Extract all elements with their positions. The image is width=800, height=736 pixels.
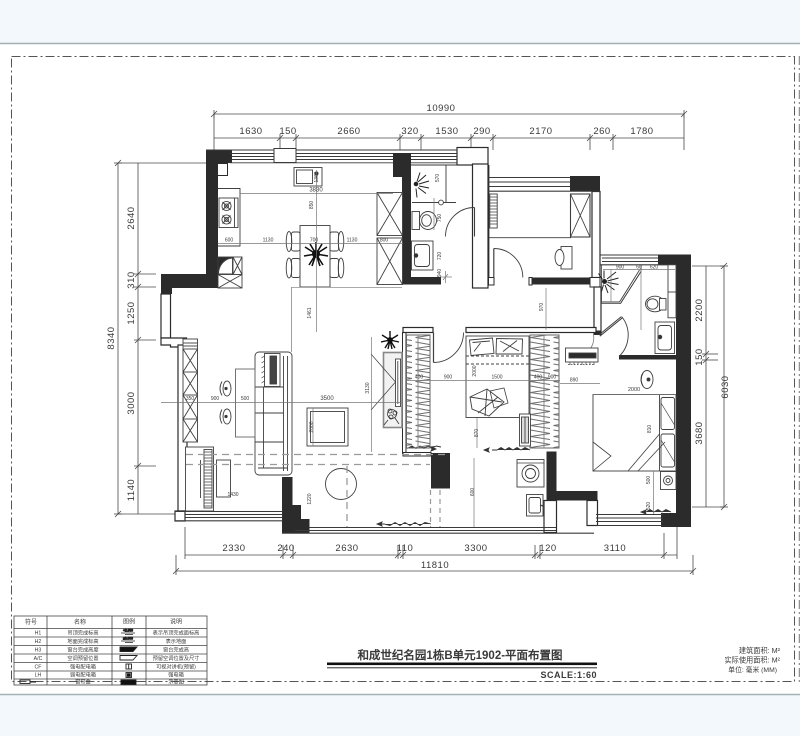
svg-text:SCALE:1:60: SCALE:1:60 [540,670,597,680]
svg-text:3130: 3130 [365,382,371,393]
svg-text:A/C: A/C [34,656,43,662]
svg-text:600: 600 [225,238,234,244]
svg-text:吊顶完成标高: 吊顶完成标高 [67,629,98,637]
svg-text:2000: 2000 [628,387,640,393]
svg-text:1630: 1630 [239,126,262,137]
svg-text:500: 500 [241,396,250,402]
svg-text:2170: 2170 [529,126,552,137]
svg-text:1430: 1430 [227,492,238,498]
svg-text:建筑面积: M²: 建筑面积: M² [739,646,781,655]
svg-text:实际使用面积: M²: 实际使用面积: M² [724,656,780,665]
svg-text:800: 800 [380,238,389,244]
svg-text:11810: 11810 [421,560,449,571]
svg-text:名称: 名称 [74,618,86,626]
svg-text:1780: 1780 [630,126,653,137]
svg-text:60: 60 [636,265,642,271]
svg-text:400: 400 [534,375,543,381]
svg-text:900: 900 [211,396,220,402]
svg-text:2200: 2200 [694,298,705,321]
svg-text:500: 500 [646,476,652,485]
svg-text:1130: 1130 [263,238,274,244]
svg-text:810: 810 [647,425,653,434]
svg-text:400: 400 [415,375,424,381]
svg-text:1461: 1461 [307,307,313,318]
svg-text:700: 700 [310,238,319,244]
svg-text:1250: 1250 [126,301,137,324]
svg-text:3000: 3000 [126,391,137,414]
svg-text:2330: 2330 [222,543,245,554]
svg-text:570: 570 [435,174,441,183]
svg-text:H1: H1 [35,631,42,637]
svg-text:120: 120 [539,543,556,554]
svg-text:±0.000: ±0.000 [123,637,133,641]
svg-text:1140: 1140 [126,479,137,501]
svg-text:870: 870 [474,429,480,438]
svg-text:LH: LH [35,673,42,679]
svg-text:窗台完成高度: 窗台完成高度 [67,646,98,654]
svg-text:2630: 2630 [335,543,358,554]
svg-text:说明: 说明 [170,618,182,626]
svg-text:可视对讲机(预留): 可视对讲机(预留) [156,663,196,671]
svg-text:2000: 2000 [309,421,315,432]
svg-text:示意图: 示意图 [168,678,184,686]
svg-text:600: 600 [470,488,476,497]
svg-text:3300: 3300 [464,543,487,554]
svg-text:890: 890 [570,378,579,384]
svg-text:900: 900 [548,375,557,381]
svg-text:强电配电箱: 强电配电箱 [70,663,96,671]
svg-text:1220: 1220 [307,493,313,504]
svg-text:表示吊顶完成面标高: 表示吊顶完成面标高 [153,629,200,637]
svg-text:900: 900 [616,265,625,271]
svg-text:850: 850 [309,201,315,210]
svg-text:2000: 2000 [472,365,478,376]
svg-text:310: 310 [126,271,137,288]
svg-text:3830: 3830 [309,188,323,194]
svg-text:8340: 8340 [106,326,117,349]
svg-text:1530: 1530 [435,126,458,137]
svg-text:H3: H3 [35,648,42,654]
svg-text:表示地面: 表示地面 [166,637,187,645]
svg-text:1361: 1361 [314,171,320,182]
svg-text:10990: 10990 [427,103,456,114]
svg-text:260: 260 [593,126,610,137]
svg-text:H2: H2 [35,639,42,645]
svg-text:图例: 图例 [123,618,135,626]
svg-text:2660: 2660 [337,126,360,137]
svg-text:单位: 毫米 (MM): 单位: 毫米 (MM) [728,665,777,674]
svg-text:150: 150 [279,126,296,137]
svg-text:窗台完成高: 窗台完成高 [163,646,189,654]
svg-text:窗帘盒: 窗帘盒 [75,678,91,686]
svg-text:6030: 6030 [720,375,731,398]
svg-text:符号: 符号 [25,618,37,626]
svg-text:空调预留位置: 空调预留位置 [67,654,98,662]
svg-text:CF: CF [35,665,42,671]
svg-text:2640: 2640 [126,206,137,229]
svg-text:和成世纪名园1栋B单元1902-平面布置图: 和成世纪名园1栋B单元1902-平面布置图 [357,648,562,662]
svg-text:110: 110 [397,543,414,554]
svg-text:3680: 3680 [694,421,705,444]
svg-text:1500: 1500 [491,375,502,381]
svg-text:720: 720 [437,252,443,261]
svg-text:+2.800: +2.800 [123,629,133,633]
svg-text:940: 940 [437,269,443,278]
svg-text:1130: 1130 [347,238,358,244]
svg-text:强电箱: 强电箱 [168,671,184,679]
svg-text:150: 150 [694,348,705,365]
svg-text:240: 240 [277,543,294,554]
svg-text:地面完成标高: 地面完成标高 [67,637,98,645]
svg-text:750: 750 [437,214,443,223]
svg-text:弱电配电箱: 弱电配电箱 [70,671,96,679]
svg-text:620: 620 [650,265,659,271]
svg-text:预留空调位置及尺寸: 预留空调位置及尺寸 [153,654,200,662]
svg-text:3500: 3500 [320,396,334,402]
svg-text:520: 520 [646,502,652,511]
svg-text:970: 970 [539,303,545,312]
svg-text:900: 900 [444,375,453,381]
svg-text:350: 350 [186,396,195,402]
svg-text:3110: 3110 [604,543,626,554]
svg-text:320: 320 [401,126,418,137]
svg-text:290: 290 [473,126,490,137]
